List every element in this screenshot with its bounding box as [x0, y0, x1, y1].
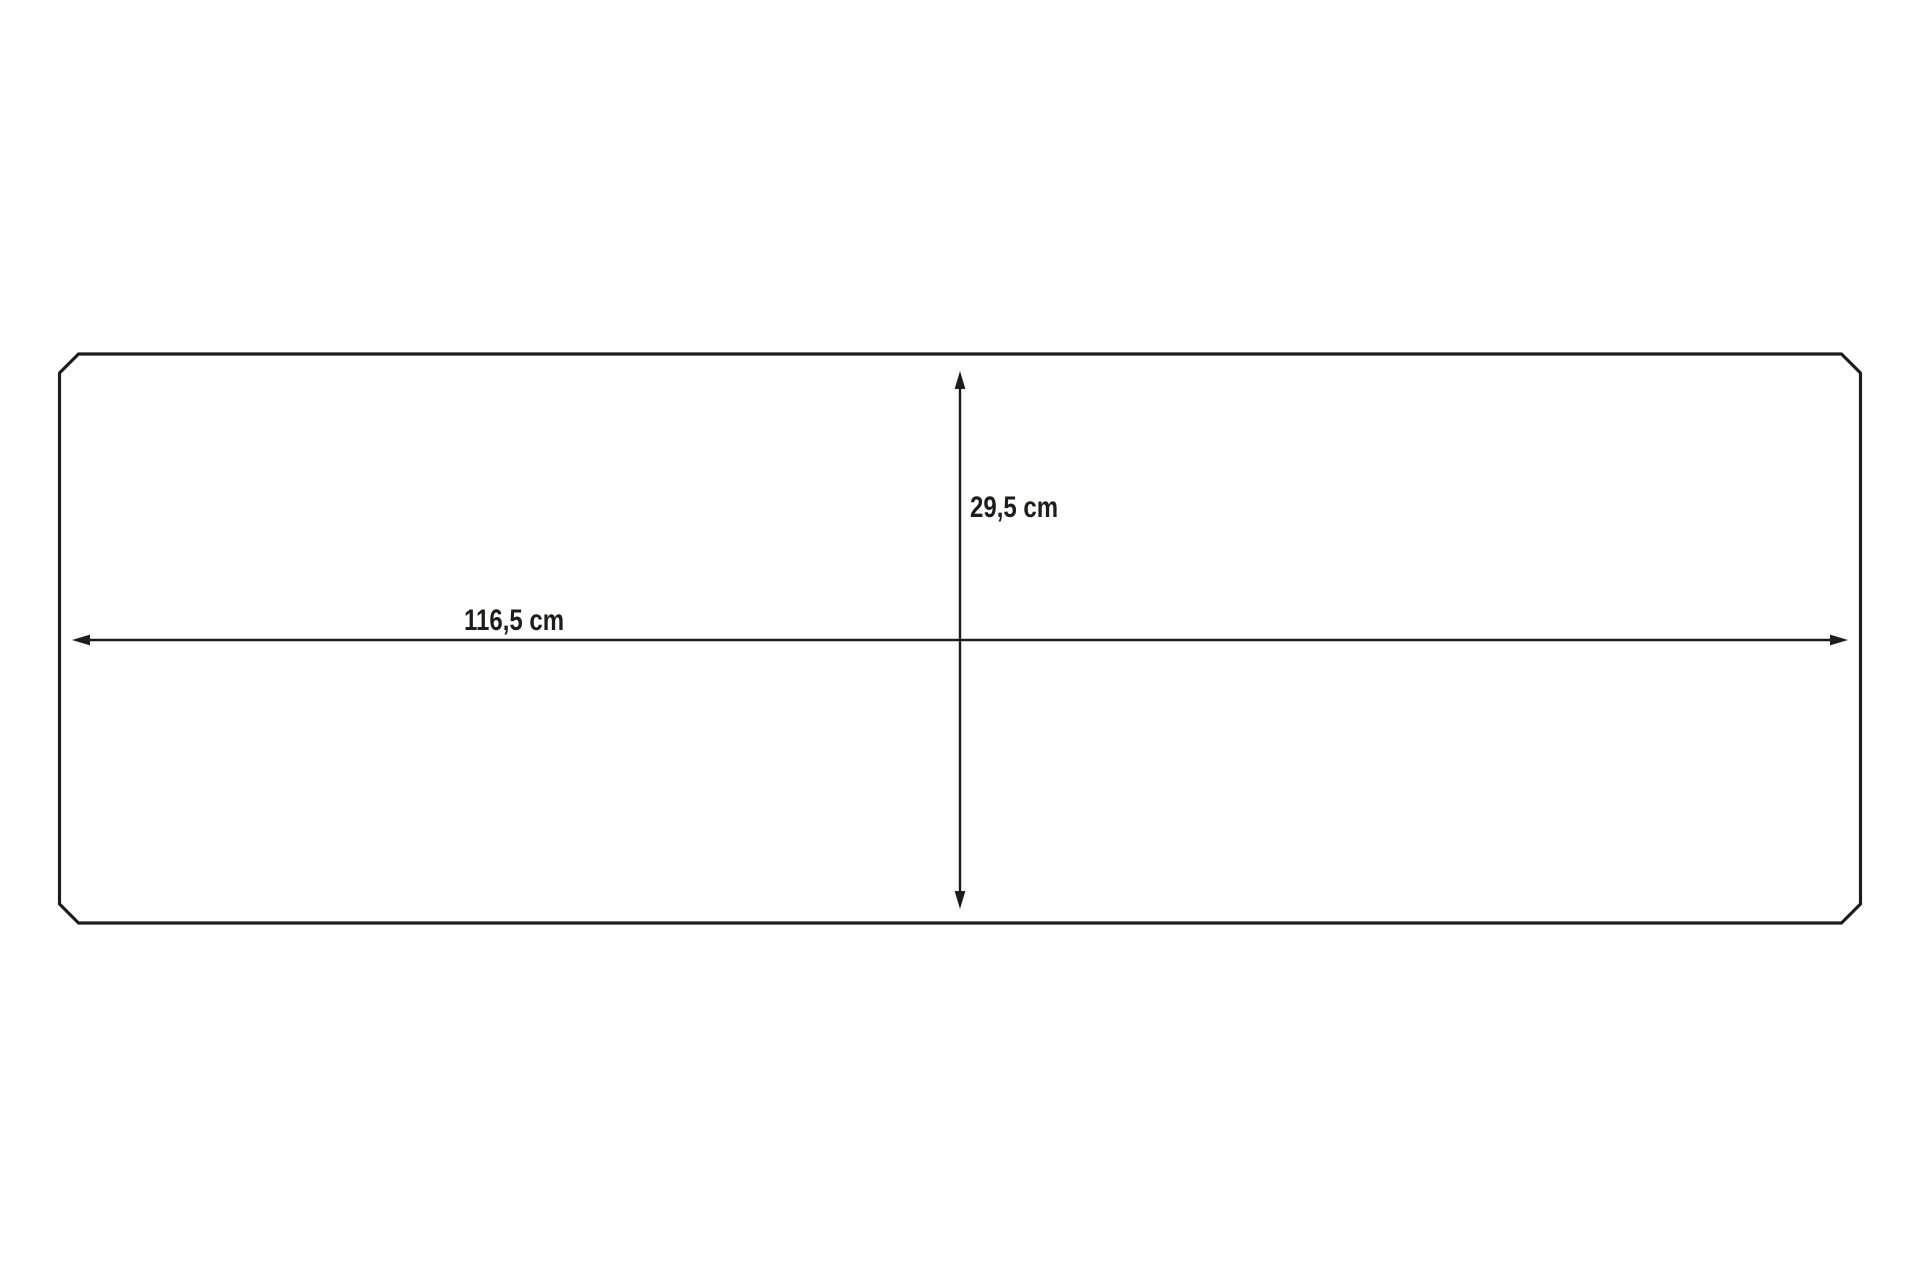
height-arrowhead-top	[955, 371, 966, 389]
height-dimension-label: 29,5 cm	[970, 493, 1058, 523]
height-arrowhead-bottom	[955, 891, 966, 909]
width-arrowhead-right	[1830, 635, 1848, 646]
diagram-canvas	[0, 0, 1920, 1280]
width-arrowhead-left	[72, 635, 90, 646]
dimension-diagram: 116,5 cm 29,5 cm	[0, 0, 1920, 1280]
width-dimension-label: 116,5 cm	[464, 606, 564, 636]
